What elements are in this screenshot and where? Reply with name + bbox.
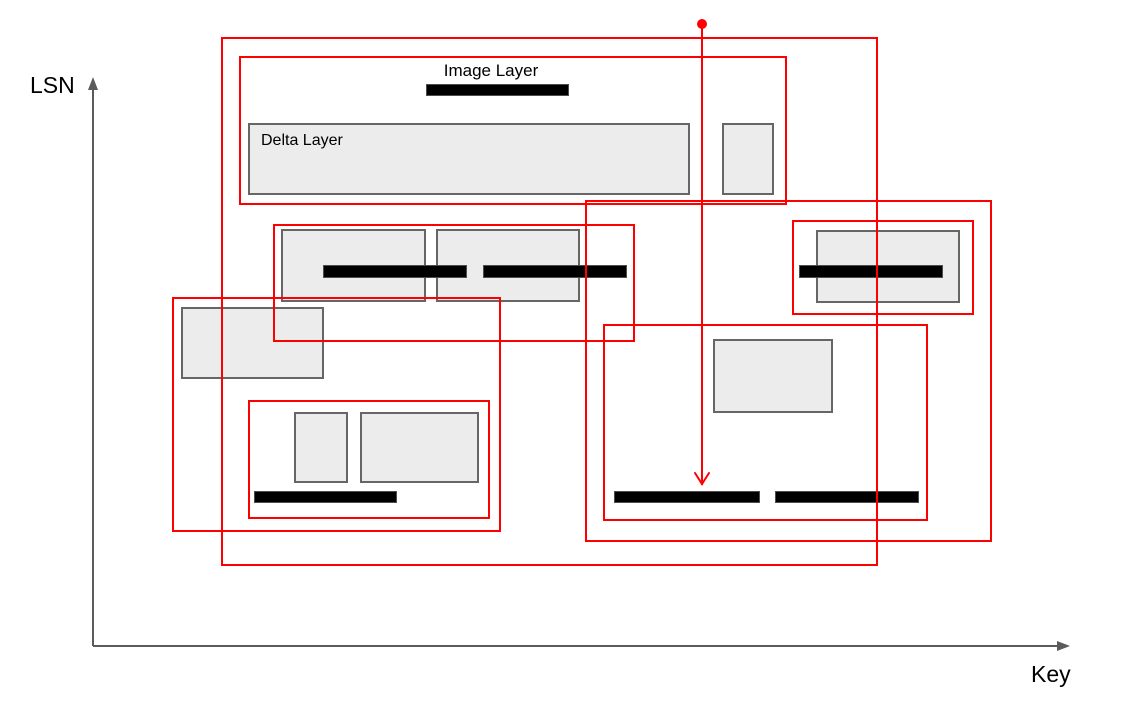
lsn-arrowhead-icon bbox=[88, 77, 98, 90]
lsn-axis-line bbox=[92, 80, 94, 646]
layer-map-diagram: LSN Key Delta Layer Image Layer bbox=[0, 0, 1131, 719]
read-query-line bbox=[701, 24, 703, 485]
red-outline-bottom-right-group bbox=[603, 324, 928, 521]
red-outline-image-layer-group bbox=[239, 56, 787, 205]
key-arrowhead-icon bbox=[1057, 641, 1070, 651]
key-axis-label: Key bbox=[1031, 661, 1071, 688]
query-arrowhead-icon bbox=[693, 471, 711, 486]
query-origin-dot-icon bbox=[697, 19, 707, 29]
red-outline-left-inner-group bbox=[248, 400, 490, 519]
lsn-axis-label: LSN bbox=[30, 72, 75, 99]
key-axis-line bbox=[93, 645, 1060, 647]
